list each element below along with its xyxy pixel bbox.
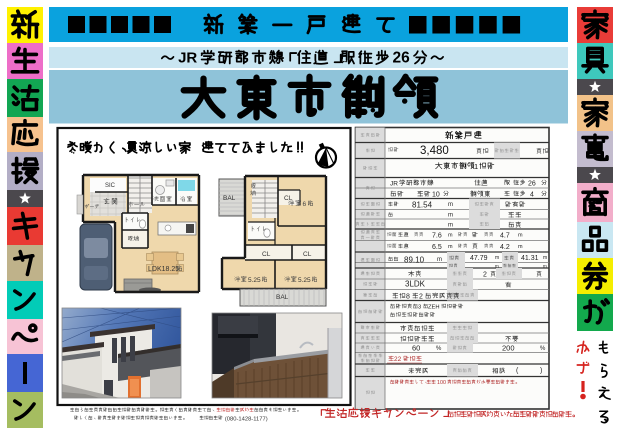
svg-text:m: m <box>448 233 453 239</box>
svg-text:CL: CL <box>262 251 271 258</box>
svg-text:3LDK: 3LDK <box>405 280 426 289</box>
svg-text:CL: CL <box>284 195 293 202</box>
svg-text:47.79: 47.79 <box>470 255 488 262</box>
svg-text:m: m <box>448 213 453 219</box>
svg-text:10: 10 <box>432 192 440 199</box>
svg-text:89.10: 89.10 <box>404 256 425 265</box>
svg-text:m: m <box>543 255 547 261</box>
svg-text:2: 2 <box>419 294 423 301</box>
svg-text:LDK18.25: LDK18.25 <box>148 266 179 273</box>
svg-text:m: m <box>518 244 523 250</box>
svg-text:26: 26 <box>528 181 536 188</box>
svg-text:22: 22 <box>394 356 402 363</box>
svg-text:%: % <box>540 346 546 352</box>
svg-text:1: 1 <box>474 162 478 171</box>
svg-text:6: 6 <box>303 201 307 208</box>
svg-text:ZEH: ZEH <box>428 305 440 311</box>
svg-text:4: 4 <box>530 192 534 199</box>
svg-text:3,480: 3,480 <box>420 145 449 157</box>
svg-text:m: m <box>543 263 547 268</box>
svg-text:7.6: 7.6 <box>432 233 442 240</box>
svg-text:100: 100 <box>437 380 446 386</box>
svg-text:3: 3 <box>418 305 421 311</box>
svg-text:4.7: 4.7 <box>500 233 510 240</box>
svg-text:CL: CL <box>303 251 312 258</box>
svg-text:m: m <box>518 233 523 239</box>
svg-text:2: 2 <box>483 272 487 279</box>
svg-text:m: m <box>448 244 453 250</box>
svg-text:(080-1428-1177): (080-1428-1177) <box>225 417 268 423</box>
svg-text:200: 200 <box>502 344 515 353</box>
svg-text:26: 26 <box>393 50 411 67</box>
svg-text:BAL: BAL <box>276 294 289 301</box>
svg-text:): ) <box>540 368 542 375</box>
svg-text:BAL: BAL <box>223 195 236 202</box>
svg-text:81.54: 81.54 <box>412 201 433 210</box>
svg-text:m: m <box>495 255 499 261</box>
svg-text:5.25: 5.25 <box>248 277 261 284</box>
svg-text:6.5: 6.5 <box>432 244 442 251</box>
svg-text:8: 8 <box>406 294 410 301</box>
svg-text:41.31: 41.31 <box>521 255 539 262</box>
svg-text:m: m <box>448 223 453 229</box>
svg-text:m: m <box>437 257 442 263</box>
svg-text:JR: JR <box>178 50 197 67</box>
svg-text:4.2: 4.2 <box>500 244 510 251</box>
svg-text:JR: JR <box>390 181 398 188</box>
svg-text:%: % <box>436 346 442 352</box>
svg-text:60: 60 <box>412 344 420 353</box>
svg-text:m: m <box>448 202 453 208</box>
svg-text:SIC: SIC <box>105 183 116 189</box>
svg-text:5.25: 5.25 <box>298 277 311 284</box>
svg-text:m: m <box>495 263 499 268</box>
